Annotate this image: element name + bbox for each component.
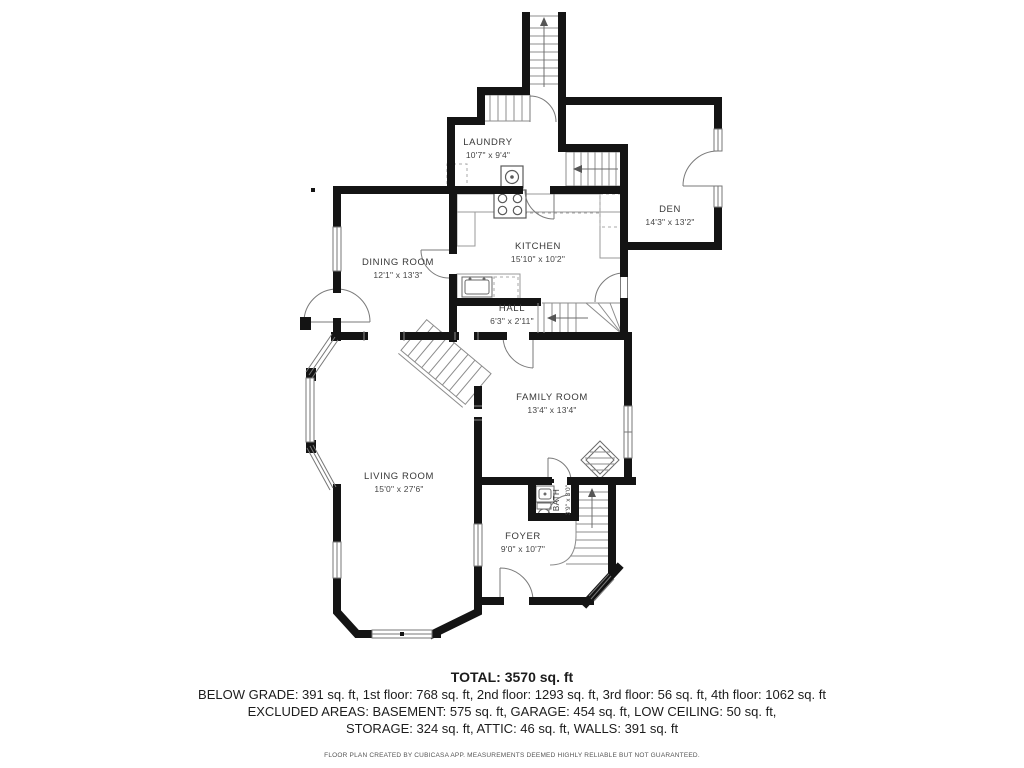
room-dims: 3'9" x 3'0"	[563, 485, 575, 516]
floor-plan-page: LAUNDRY 10'7" x 9'4" DEN 14'3" x 13'2" K…	[0, 0, 1024, 768]
disclaimer-text: FLOOR PLAN CREATED BY CUBICASA APP. MEAS…	[0, 752, 1024, 759]
room-label-den: DEN 14'3" x 13'2"	[645, 204, 694, 228]
room-label-dining-room: DINING ROOM 12'1" x 13'3"	[362, 257, 434, 281]
room-dims: 6'3" x 2'11"	[490, 315, 534, 327]
total-area-text: TOTAL: 3570 sq. ft	[0, 669, 1024, 685]
floor-plan-drawing	[0, 0, 1024, 768]
room-name: BATH	[551, 485, 563, 516]
excluded-areas-text: EXCLUDED AREAS: BASEMENT: 575 sq. ft, GA…	[0, 704, 1024, 719]
room-dims: 15'10" x 10'2"	[511, 253, 565, 265]
room-label-bath: BATH 3'9" x 3'0"	[551, 485, 575, 516]
floor-areas-text: BELOW GRADE: 391 sq. ft, 1st floor: 768 …	[0, 687, 1024, 702]
room-dims: 12'1" x 13'3"	[362, 269, 434, 281]
stove-icon	[494, 190, 526, 218]
room-label-living-room: LIVING ROOM 15'0" x 27'6"	[364, 471, 434, 495]
kitchen-sink-icon	[462, 277, 492, 297]
room-name: KITCHEN	[511, 241, 565, 253]
room-name: LIVING ROOM	[364, 471, 434, 483]
room-name: DEN	[645, 204, 694, 216]
room-name: FOYER	[501, 531, 545, 543]
room-label-kitchen: KITCHEN 15'10" x 10'2"	[511, 241, 565, 265]
room-label-laundry: LAUNDRY 10'7" x 9'4"	[463, 137, 512, 161]
room-label-hall: HALL 6'3" x 2'11"	[490, 303, 534, 327]
room-label-foyer: FOYER 9'0" x 10'7"	[501, 531, 545, 555]
room-label-family-room: FAMILY ROOM 13'4" x 13'4"	[516, 392, 588, 416]
room-dims: 13'4" x 13'4"	[516, 404, 588, 416]
room-name: FAMILY ROOM	[516, 392, 588, 404]
room-name: LAUNDRY	[463, 137, 512, 149]
washer-icon	[501, 166, 523, 188]
room-dims: 14'3" x 13'2"	[645, 216, 694, 228]
area-summary: TOTAL: 3570 sq. ft BELOW GRADE: 391 sq. …	[0, 669, 1024, 766]
room-dims: 10'7" x 9'4"	[463, 149, 512, 161]
room-name: DINING ROOM	[362, 257, 434, 269]
excluded-areas-text-2: STORAGE: 324 sq. ft, ATTIC: 46 sq. ft, W…	[0, 721, 1024, 736]
room-name: HALL	[490, 303, 534, 315]
fireplace-icon	[581, 441, 619, 479]
room-dims: 9'0" x 10'7"	[501, 543, 545, 555]
room-dims: 15'0" x 27'6"	[364, 483, 434, 495]
